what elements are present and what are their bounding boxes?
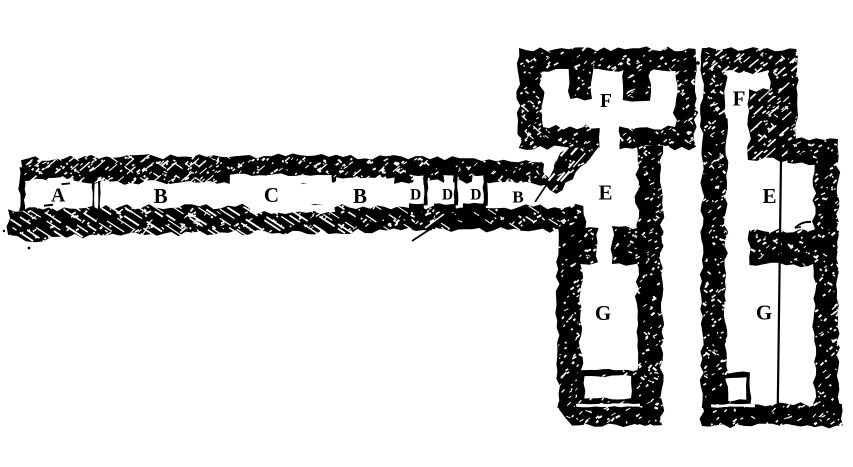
svg-text:D: D <box>410 186 421 203</box>
svg-text:F: F <box>600 91 612 112</box>
svg-text:F: F <box>733 87 746 111</box>
svg-text:D: D <box>442 186 453 203</box>
svg-text:C: C <box>264 183 279 207</box>
svg-text:A: A <box>51 185 65 206</box>
svg-text:D: D <box>470 186 481 203</box>
svg-text:B: B <box>353 184 367 208</box>
svg-text:E: E <box>762 184 776 208</box>
svg-text:E: E <box>598 180 612 204</box>
svg-text:G: G <box>595 301 611 325</box>
svg-text:B: B <box>512 187 523 206</box>
svg-text:B: B <box>154 184 168 208</box>
svg-text:G: G <box>756 301 772 325</box>
